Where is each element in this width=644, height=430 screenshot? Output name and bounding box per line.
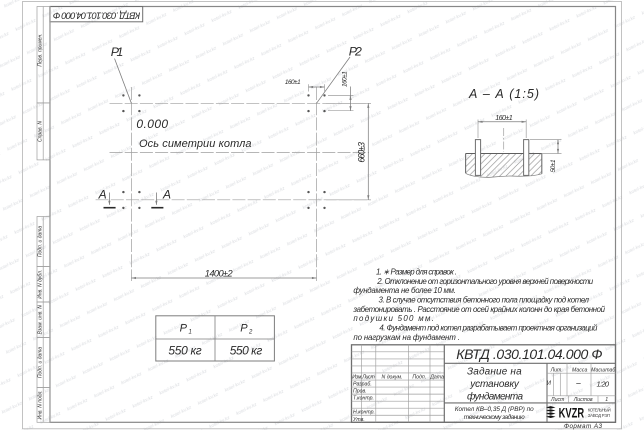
svg-text:по нагрузкам на фундамент .: по нагрузкам на фундамент .: [353, 333, 460, 342]
svg-text:фундамента: фундамента: [467, 391, 523, 403]
svg-text:Разраб.: Разраб.: [353, 382, 372, 388]
svg-text:Изм.Лист: Изм.Лист: [352, 374, 375, 380]
svg-text:KVZR: KVZR: [559, 404, 585, 420]
svg-text:Взам. инв. N: Взам. инв. N: [38, 305, 44, 335]
svg-text:3. В случае отсутствия бетонно: 3. В случае отсутствия бетонного пола пл…: [379, 296, 590, 305]
svg-text:0.000: 0.000: [136, 117, 168, 131]
svg-text:1:20: 1:20: [597, 380, 610, 389]
svg-text:Пров.: Пров.: [353, 389, 367, 395]
svg-text:N докум.: N докум.: [382, 374, 403, 380]
svg-text:Инв. N дубл.: Инв. N дубл.: [38, 270, 44, 299]
svg-text:А: А: [98, 188, 107, 202]
svg-text:Утв.: Утв.: [353, 417, 365, 423]
svg-text:Подп. и дата: Подп. и дата: [38, 347, 44, 379]
svg-text:Задание на: Задание на: [467, 367, 522, 378]
svg-text:фундамента не более 10 мм.: фундамента не более 10 мм.: [353, 286, 456, 295]
svg-text:Н.контр.: Н.контр.: [353, 410, 375, 416]
svg-text:–: –: [575, 378, 581, 387]
svg-text:160±1: 160±1: [285, 79, 301, 86]
svg-text:Перв. примен.: Перв. примен.: [38, 33, 44, 66]
svg-text:Лист: Лист: [550, 397, 565, 403]
svg-text:КВТД .030.101.04.000 Ф: КВТД .030.101.04.000 Ф: [52, 11, 140, 22]
svg-text:4. Фундамент под котел разраба: 4. Фундамент под котел разрабатывает про…: [379, 324, 598, 333]
svg-text:подушки 500 мм.: подушки 500 мм.: [353, 314, 434, 323]
svg-text:1. ∗ Размер для справок .: 1. ∗ Размер для справок .: [376, 267, 457, 276]
svg-text:ЗАВОД РЭП: ЗАВОД РЭП: [588, 413, 610, 418]
svg-text:Масса: Масса: [572, 367, 587, 373]
svg-text:Р: Р: [180, 323, 188, 335]
svg-text:1400±2: 1400±2: [205, 269, 234, 279]
svg-text:КВТД .030.101.04.000 Ф: КВТД .030.101.04.000 Ф: [456, 346, 602, 362]
svg-text:660±3: 660±3: [356, 142, 366, 163]
svg-text:Масштаб: Масштаб: [591, 367, 616, 373]
svg-text:160±1: 160±1: [341, 71, 348, 87]
svg-text:техническому заданию: техническому заданию: [464, 413, 525, 421]
svg-text:1: 1: [189, 330, 192, 336]
svg-text:Подп. и дата: Подп. и дата: [38, 226, 44, 258]
svg-text:1: 1: [605, 397, 608, 403]
svg-text:Подп.: Подп.: [412, 374, 426, 380]
svg-text:Котел КВ–0,35 Д (РВР) по: Котел КВ–0,35 Д (РВР) по: [455, 406, 534, 413]
svg-text:забетонировать . Расстояние от: забетонировать . Расстояние от осей край…: [352, 305, 605, 314]
svg-text:А – А (1:5): А – А (1:5): [468, 87, 539, 101]
svg-text:Формат А3: Формат А3: [564, 423, 602, 430]
svg-text:И: И: [547, 381, 552, 387]
svg-text:160±1: 160±1: [495, 113, 512, 122]
svg-text:Р1: Р1: [111, 45, 124, 59]
svg-text:Листов: Листов: [573, 397, 593, 403]
svg-text:550 кг: 550 кг: [230, 344, 263, 358]
svg-text:550 кг: 550 кг: [168, 344, 201, 358]
svg-text:КОТЕЛЬНЫЙ: КОТЕЛЬНЫЙ: [588, 408, 611, 413]
svg-text:Р2: Р2: [349, 45, 362, 59]
svg-text:Инв. N подл.: Инв. N подл.: [38, 390, 44, 419]
svg-text:2. Отклонение от горизонтально: 2. Отклонение от горизонтального уровня …: [376, 277, 594, 286]
svg-text:Т.контр.: Т.контр.: [353, 396, 374, 402]
svg-text:Справ. N: Справ. N: [38, 121, 44, 142]
svg-text:Р: Р: [240, 323, 248, 335]
svg-text:2: 2: [248, 330, 253, 336]
svg-text:установку: установку: [469, 379, 520, 390]
svg-text:Ось симетрии котла: Ось симетрии котла: [139, 138, 252, 150]
svg-text:А: А: [162, 188, 171, 202]
svg-text:Лит.: Лит.: [550, 367, 563, 373]
svg-text:Дата: Дата: [429, 374, 444, 380]
svg-text:50±1: 50±1: [550, 159, 557, 172]
